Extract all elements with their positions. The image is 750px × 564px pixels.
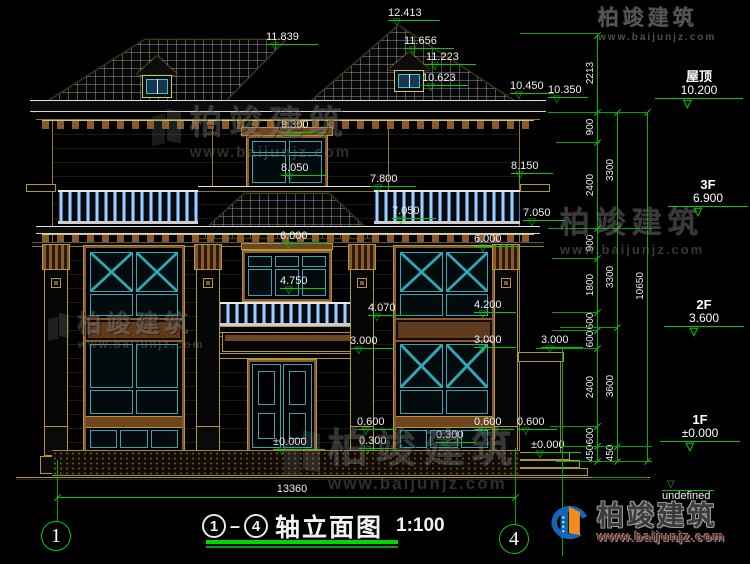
dim-label: 1800 — [586, 265, 596, 305]
dim-extension-line — [552, 258, 598, 259]
title-axis-from-circle: 1 — [202, 514, 226, 538]
level-marker: 0.300▽ — [359, 436, 397, 449]
dim-extension-line — [550, 426, 598, 427]
dim-extension-line — [548, 228, 652, 229]
level-marker: 7.050▽ — [523, 208, 565, 221]
level-marker: 3.000▽ — [541, 335, 583, 348]
dim-extension-line — [552, 330, 598, 331]
overall-dim-text: 13360 — [262, 483, 322, 495]
level-marker: 4.200▽ — [474, 300, 516, 313]
level-marker: 10.350▽ — [548, 85, 588, 98]
level-marker: 11.656▽ — [404, 36, 454, 49]
level-marker: 9.300▽ — [281, 120, 327, 133]
level-marker: 0.600▽ — [517, 417, 557, 430]
level-marker: 6.000▽ — [280, 231, 326, 244]
dim-extension-line — [556, 461, 652, 462]
title-axis-to-circle: 4 — [244, 514, 268, 538]
level-marker: 6.000▽ — [474, 234, 518, 247]
brand-logo: 柏竣建筑 www.baijunjz.com — [543, 500, 725, 546]
dim-label: 2400 — [586, 367, 596, 407]
axis-bubble-4: 4 — [499, 524, 529, 554]
dim-label: 600 — [586, 319, 596, 359]
dim-extension-line — [520, 33, 598, 34]
floor-marker: 1F±0.000▽ — [660, 413, 740, 442]
dim-extension-line — [552, 312, 598, 313]
level-marker: 3.000▽ — [350, 336, 394, 349]
dim-extension-line — [560, 446, 652, 447]
dim-label: 900 — [586, 107, 596, 147]
dim-column-line — [617, 112, 618, 461]
drawing-title: 1 – 4 轴立面图 1:100 — [202, 508, 445, 544]
level-marker: ±0.000▽ — [273, 437, 325, 450]
title-scale: 1:100 — [396, 515, 445, 537]
brand-url: www.baijunjz.com — [597, 530, 725, 544]
cad-elevation-drawing: 12.413▽11.839▽11.656▽11.223▽10.623▽10.45… — [0, 0, 750, 564]
dim-extension-line — [592, 477, 648, 478]
dim-extension-line — [536, 348, 598, 349]
dim-extension-line — [548, 112, 648, 113]
dim-column-line — [647, 112, 648, 461]
floor-marker: 屋顶10.200▽ — [655, 70, 743, 99]
level-marker: 7.800▽ — [370, 174, 416, 187]
level-marker: 12.413▽ — [388, 8, 440, 21]
dim-label: 3600 — [606, 366, 616, 406]
level-marker: 0.600▽ — [357, 417, 397, 430]
level-marker: 11.223▽ — [426, 52, 476, 65]
dim-label: 3300 — [606, 150, 616, 190]
dim-label: 900 — [586, 223, 596, 263]
watermark-logo-icon — [152, 110, 182, 148]
dim-extension-line — [560, 327, 618, 328]
level-marker: 0.300▽ — [436, 430, 476, 443]
dim-label: 450 — [586, 433, 596, 473]
level-marker: 7.050▽ — [392, 206, 436, 219]
brand-logo-icon — [543, 500, 591, 546]
dim-label: 10650 — [636, 266, 646, 306]
annotation-layer: 12.413▽11.839▽11.656▽11.223▽10.623▽10.45… — [0, 0, 750, 564]
level-marker: 3.000▽ — [474, 335, 516, 348]
level-marker: 10.623▽ — [422, 73, 468, 86]
title-underline-2 — [206, 546, 398, 548]
title-dash: – — [230, 516, 240, 537]
dim-label: 2400 — [586, 165, 596, 205]
title-text: 轴立面图 — [275, 508, 383, 544]
dim-label: 2213 — [586, 53, 596, 93]
floor-marker: 3F6.900▽ — [668, 178, 748, 207]
dim-label: 3300 — [606, 257, 616, 297]
dim-label: 450 — [606, 433, 616, 473]
overall-dim-line — [57, 497, 515, 498]
axis-bubble-1: 1 — [41, 521, 71, 551]
level-marker: 0.600▽ — [474, 417, 514, 430]
level-marker: 8.050▽ — [281, 163, 327, 176]
watermark: 柏竣建筑www.baijunjz.com — [598, 2, 716, 43]
floor-marker: 2F3.600▽ — [664, 298, 744, 327]
level-marker: 4.750▽ — [280, 276, 326, 289]
dim-extension-line — [556, 142, 600, 143]
dim-extension-line — [515, 448, 516, 524]
brand-name: 柏竣建筑 — [597, 502, 725, 530]
dim-extension-line — [57, 460, 58, 521]
title-underline — [206, 540, 398, 544]
level-marker: 4.070▽ — [368, 303, 412, 316]
watermark: 柏竣建筑www.baijunjz.com — [48, 304, 205, 351]
dim-column-line — [597, 35, 598, 461]
watermark-logo-icon — [48, 314, 70, 342]
level-marker: 8.150▽ — [511, 161, 553, 174]
level-marker: 11.839▽ — [266, 32, 318, 45]
